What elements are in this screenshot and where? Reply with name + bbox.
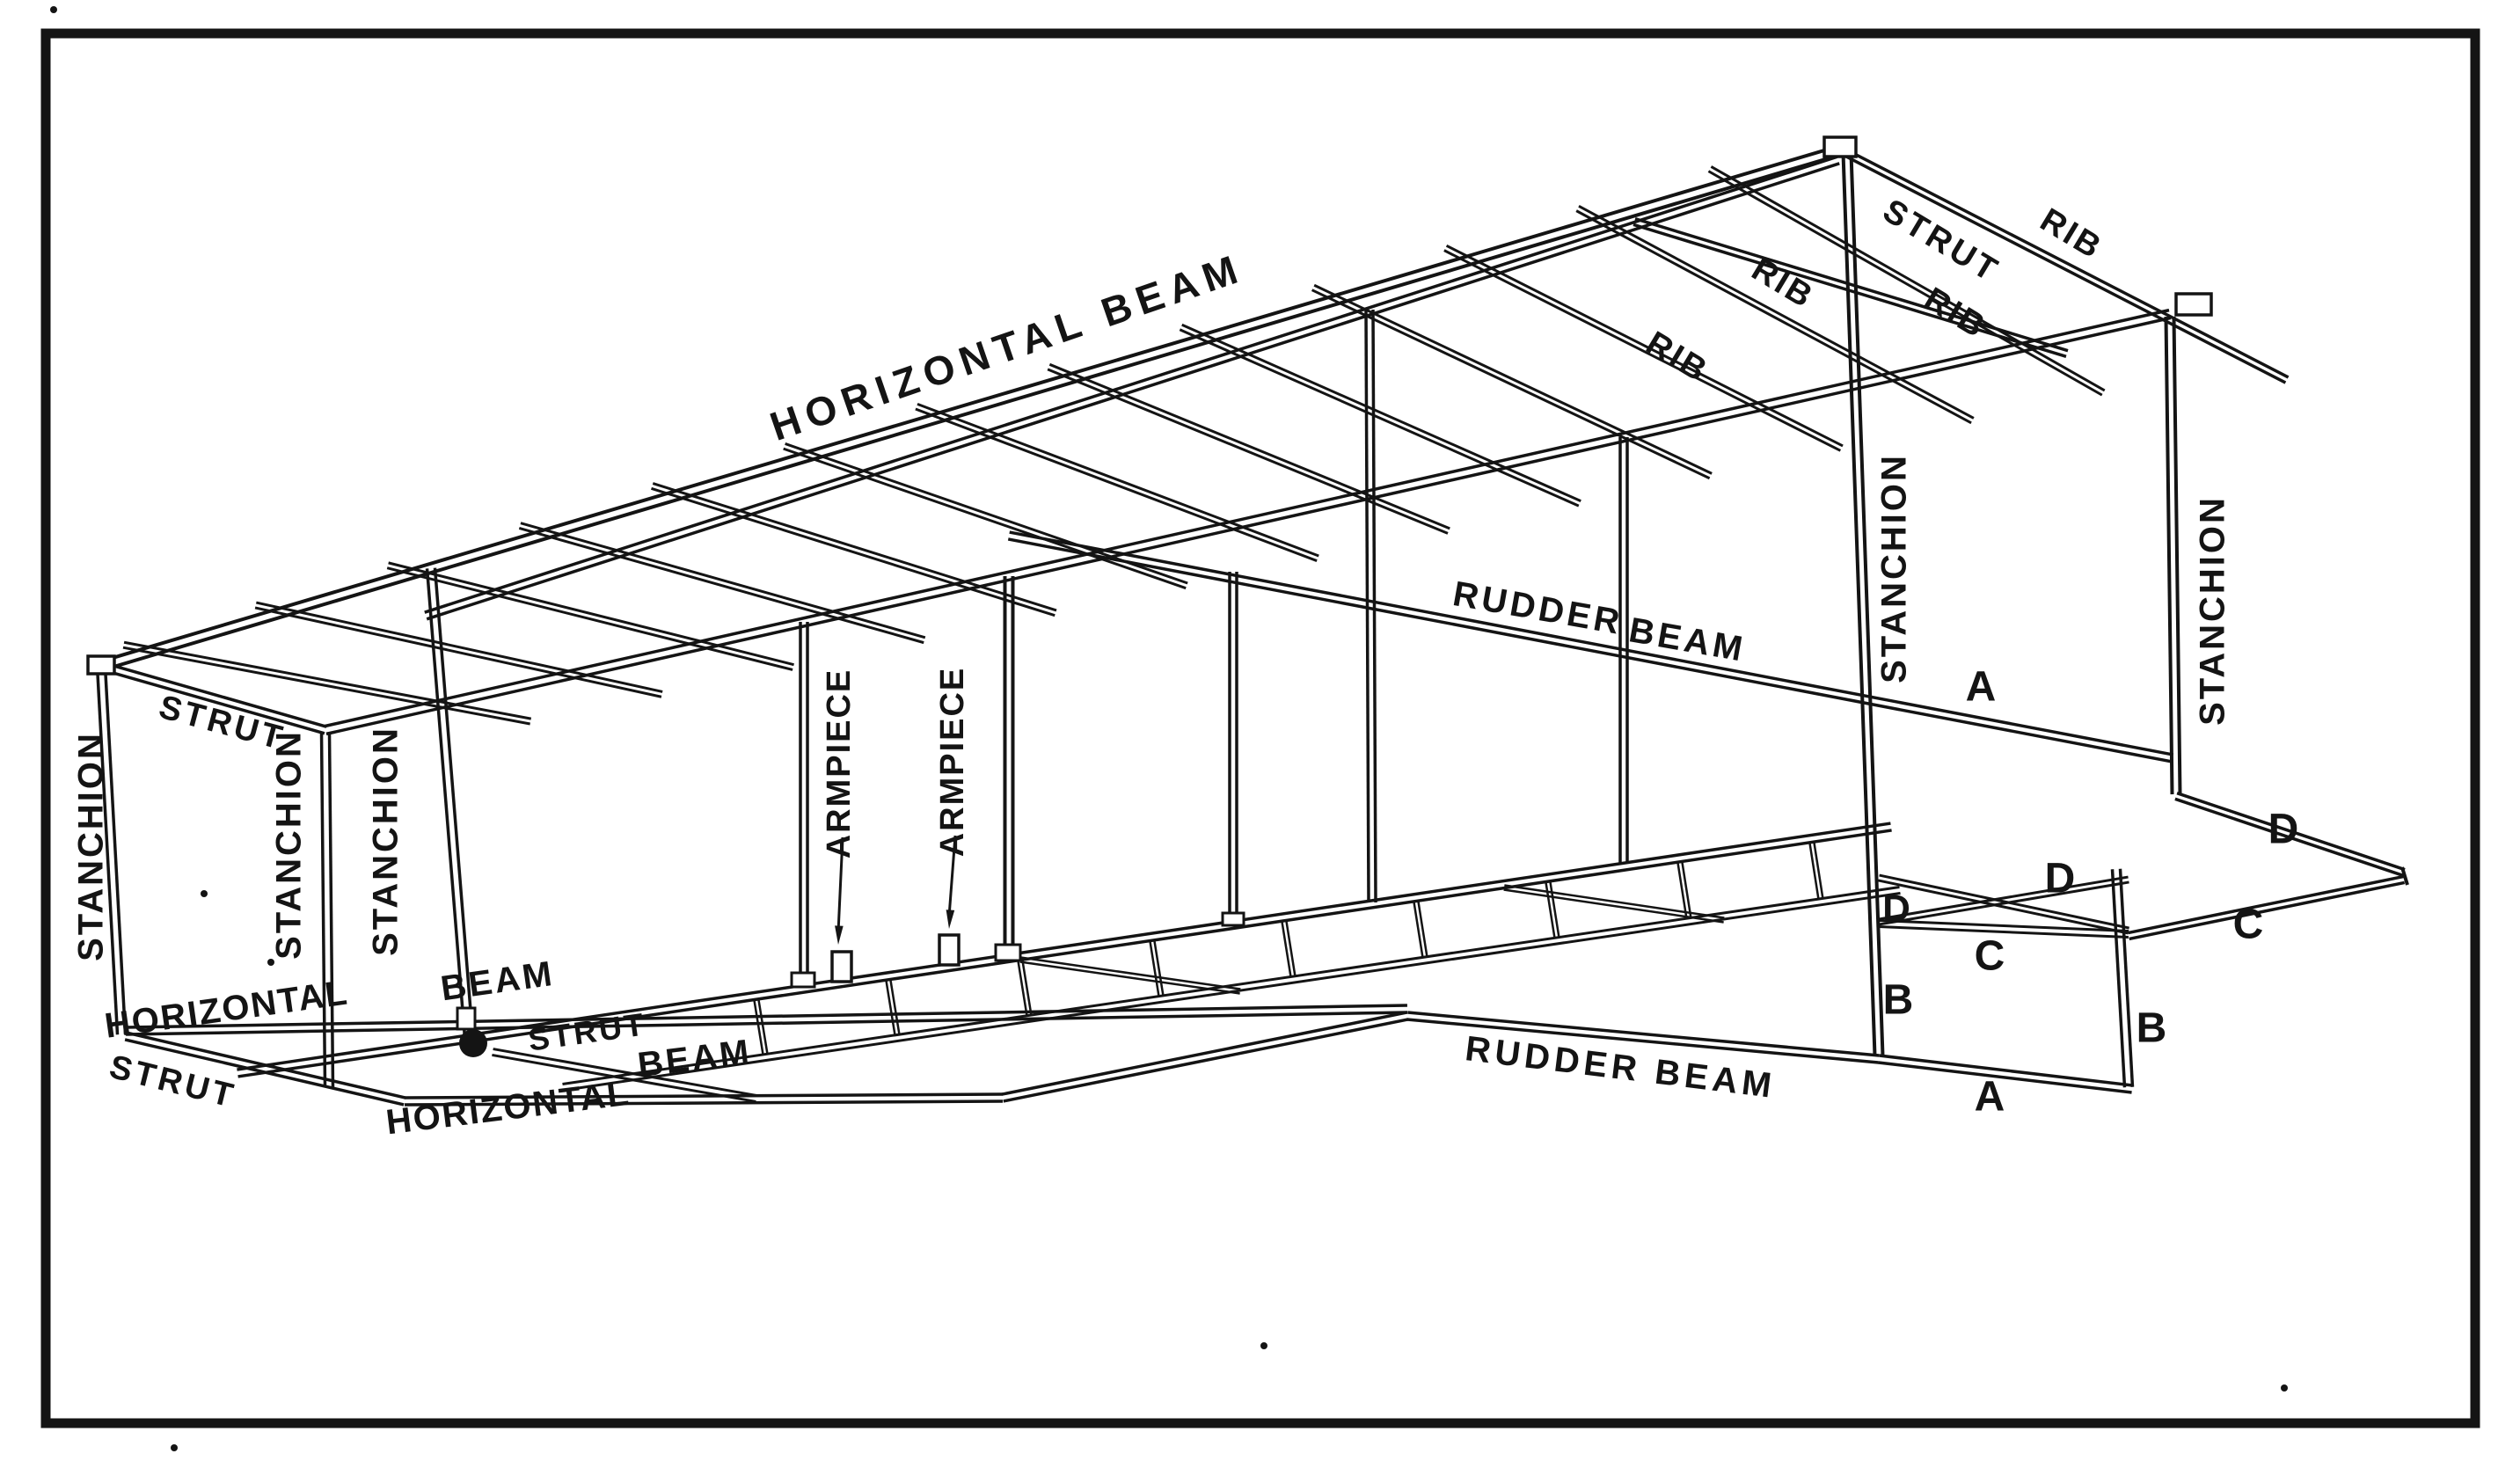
label-letter-c-left: C: [1975, 933, 2005, 980]
label-armpiece-1: ARMPIECE: [821, 668, 858, 859]
label-letter-a-lower: A: [1975, 1074, 2005, 1121]
tail-framing-diagram: HORIZONTAL BEAMSTRUTRIBRIBRIBRIBRUDDERBE…: [0, 0, 2520, 1461]
label-stanchion-right-far: STANCHION: [2194, 495, 2232, 726]
rear-lug: [2176, 294, 2211, 315]
ink-speck: [201, 890, 208, 897]
stanchion-foot-2: [996, 945, 1020, 961]
ink-speck: [2281, 1384, 2288, 1392]
label-stanchion-right-near: STANCHION: [1875, 453, 1914, 683]
label-stanchion-left-2: STANCHION: [270, 729, 309, 960]
label-stanchion-left-1: STANCHION: [72, 731, 111, 961]
label-letter-b-left: B: [1883, 977, 1914, 1024]
stanchion-foot-1: [792, 973, 814, 987]
left-end-fitting: [88, 656, 114, 674]
label-armpiece-2: ARMPIECE: [934, 667, 971, 858]
armpiece-block-2: [939, 935, 959, 965]
engraving-page: HORIZONTAL BEAMSTRUTRIBRIBRIBRIBRUDDERBE…: [0, 0, 2520, 1461]
stanchion-foot-3: [1223, 913, 1244, 925]
label-letter-b-right: B: [2137, 1005, 2167, 1052]
peak-fitting: [1824, 137, 1856, 157]
label-letter-c-right: C: [2233, 902, 2264, 948]
label-stanchion-left-3: STANCHION: [367, 726, 405, 956]
ink-speck: [171, 1444, 178, 1451]
label-letter-d-mid: D: [2045, 856, 2076, 902]
label-letter-d-right: D: [2268, 807, 2299, 853]
ink-speck: [50, 6, 57, 13]
blob-fitting: [457, 1008, 475, 1029]
ink-speck: [1260, 1342, 1267, 1349]
armpiece-block-1: [832, 952, 851, 982]
label-letter-a-upper: A: [1966, 664, 1997, 711]
joint-blob: [459, 1029, 487, 1057]
label-letter-d-left: D: [1882, 888, 1910, 931]
